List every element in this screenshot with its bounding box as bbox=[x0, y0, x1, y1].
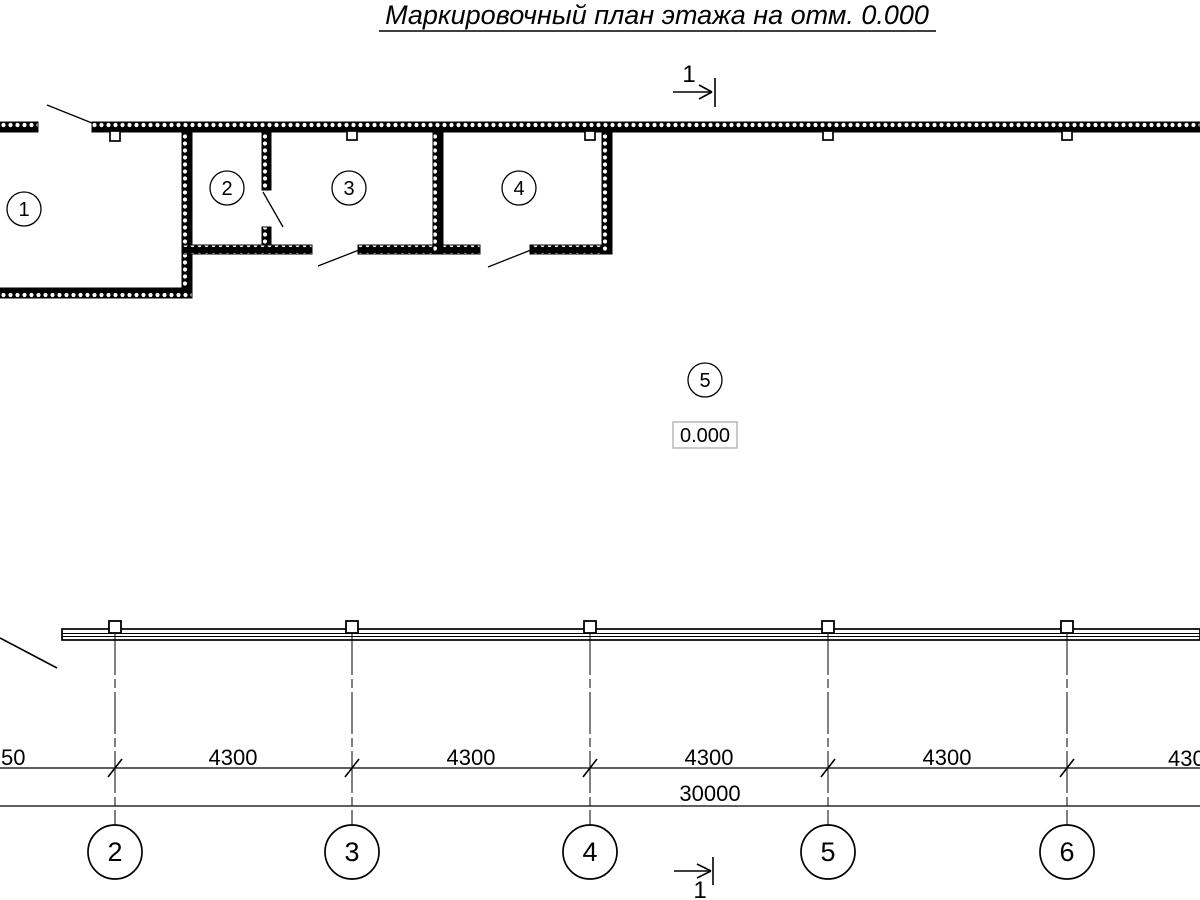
wall-room1-bottom bbox=[0, 288, 192, 298]
wall-room1-right bbox=[182, 132, 192, 298]
dimension-labels: 50 4300 4300 4300 4300 430 bbox=[1, 745, 1200, 771]
axis-number-2: 2 bbox=[107, 837, 122, 867]
room-number-5: 5 bbox=[699, 370, 710, 392]
wall-top-left-piece bbox=[0, 122, 38, 132]
fence-post bbox=[584, 621, 596, 633]
grid-axis-bubbles: 2 3 4 5 6 bbox=[88, 825, 1094, 879]
elevation-marker: 0.000 bbox=[673, 422, 737, 448]
wall-partition-lower bbox=[262, 227, 271, 246]
dimension-label: 4300 bbox=[685, 745, 734, 770]
fence-outline bbox=[62, 629, 1200, 640]
dimension-label: 4300 bbox=[447, 745, 496, 770]
dimension-lines: 50 4300 4300 4300 4300 430 30000 bbox=[0, 745, 1200, 806]
axis-number-3: 3 bbox=[344, 837, 359, 867]
wall-room4-right bbox=[602, 132, 612, 254]
page-title: Маркировочный план этажа на отм. 0.000 bbox=[385, 0, 929, 30]
fence-band bbox=[0, 621, 1200, 668]
room-number-3: 3 bbox=[343, 178, 354, 200]
column-marker bbox=[110, 131, 120, 141]
floor-plan-walls bbox=[0, 105, 1200, 298]
section-marker-top: 1 bbox=[673, 61, 715, 107]
axis-number-6: 6 bbox=[1059, 837, 1074, 867]
room-number-2: 2 bbox=[221, 178, 232, 200]
section-marker-bottom: 1 bbox=[674, 857, 713, 900]
wall-room3-bottom bbox=[358, 245, 480, 254]
section-arrowhead-icon bbox=[699, 92, 712, 99]
wall-partition-upper bbox=[262, 132, 271, 190]
column-marker bbox=[1062, 131, 1072, 140]
elevation-value: 0.000 bbox=[680, 425, 730, 447]
door-leaf-room4 bbox=[488, 250, 531, 267]
section-label: 1 bbox=[693, 877, 706, 900]
section-arrowhead-icon bbox=[699, 85, 712, 92]
drawing-canvas: Маркировочный план этажа на отм. 0.000 1 bbox=[0, 0, 1200, 900]
fence-post bbox=[346, 621, 358, 633]
dimension-label-clipped-right: 430 bbox=[1168, 746, 1200, 771]
section-label: 1 bbox=[682, 61, 695, 88]
dimension-label-clipped-left: 50 bbox=[1, 745, 25, 770]
axis-number-5: 5 bbox=[820, 837, 835, 867]
wall-room2-bottom bbox=[182, 245, 312, 254]
room-number-1: 1 bbox=[18, 199, 29, 221]
grid-axis-lines bbox=[115, 633, 1067, 825]
floor-plan-drawing: Маркировочный план этажа на отм. 0.000 1 bbox=[0, 0, 1200, 900]
column-marker bbox=[823, 131, 833, 140]
wall-top-main bbox=[92, 122, 1200, 132]
column-marker bbox=[347, 131, 357, 140]
fence-post bbox=[1061, 621, 1073, 633]
dimension-label: 4300 bbox=[209, 745, 258, 770]
wall-room3-4-divider bbox=[433, 132, 443, 254]
drawing-title-block: Маркировочный план этажа на отм. 0.000 bbox=[379, 0, 936, 31]
column-marker bbox=[585, 131, 595, 140]
room-markers: 1 2 3 4 5 bbox=[7, 171, 722, 397]
door-leaf-room2 bbox=[263, 192, 283, 227]
dimension-total-label: 30000 bbox=[679, 781, 740, 806]
section-arrowhead-icon bbox=[697, 864, 711, 871]
fence-leader-line bbox=[0, 638, 57, 668]
door-leaf-room3 bbox=[318, 250, 359, 266]
wall-room4-bottom bbox=[530, 245, 612, 254]
room-number-4: 4 bbox=[513, 178, 524, 200]
fence-post bbox=[822, 621, 834, 633]
axis-number-4: 4 bbox=[582, 837, 597, 867]
dimension-label: 4300 bbox=[923, 745, 972, 770]
door-leaf-entry bbox=[47, 105, 92, 123]
fence-post bbox=[109, 621, 121, 633]
